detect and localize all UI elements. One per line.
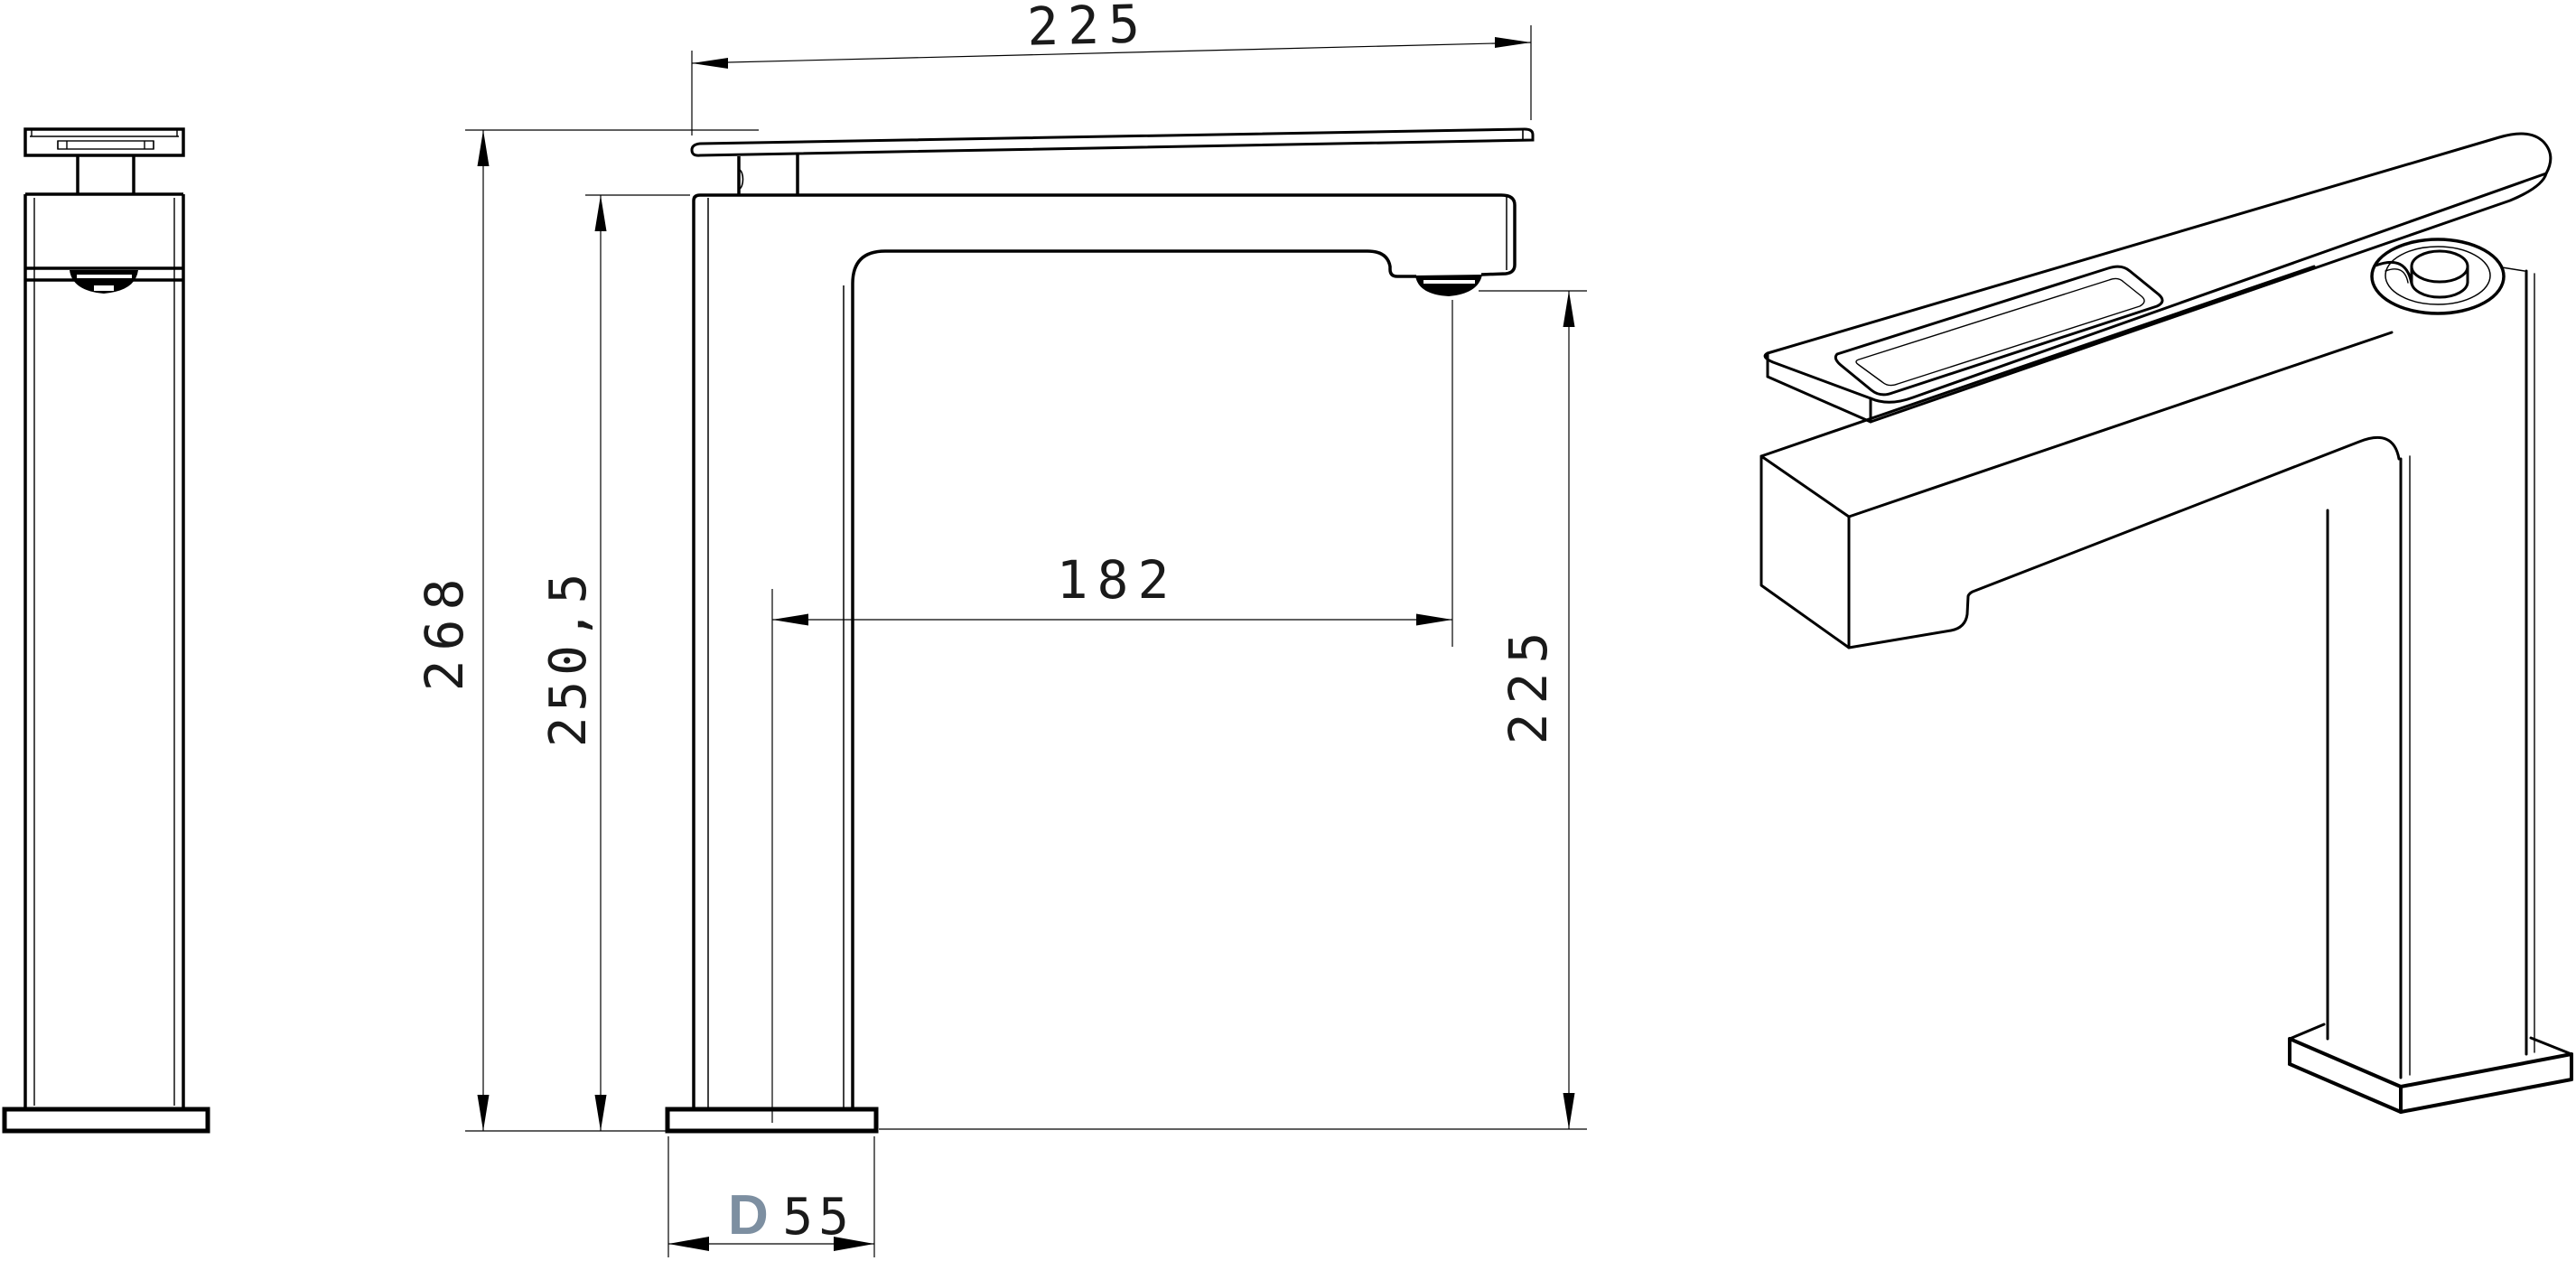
side-view (5, 129, 208, 1131)
iso-view (1761, 134, 2571, 1112)
dim-handle-length: 225 (692, 0, 1531, 135)
arrow-left-icon (692, 58, 728, 69)
front-handle-lever (692, 129, 1533, 155)
drawing-sheet: 225 268 250,5 182 (0, 0, 2576, 1261)
front-body-outline (694, 195, 1515, 1109)
side-base-plate (5, 1109, 208, 1131)
arrow-right-icon (1416, 614, 1452, 626)
iso-column (2328, 267, 2534, 1078)
arrow-down-icon (595, 1095, 607, 1131)
faucet-technical-drawing: 225 268 250,5 182 (0, 0, 2576, 1261)
dim-label-body-height: 250,5 (539, 568, 598, 748)
dimensions: 225 268 250,5 182 (414, 0, 1587, 1257)
dim-body-height: 250,5 (539, 195, 690, 1131)
arrow-up-icon (1563, 291, 1575, 327)
dim-label-handle-length: 225 (1026, 0, 1149, 58)
arrow-down-icon (1563, 1093, 1575, 1129)
iso-base (2290, 1024, 2571, 1112)
dim-base-diameter: D 55 (668, 1136, 874, 1257)
front-cartridge-stem (739, 154, 798, 195)
arrow-right-icon (1495, 37, 1531, 48)
dim-label-spout-reach: 182 (1057, 549, 1179, 611)
front-view (667, 129, 1533, 1131)
dim-spout-height: 225 (1479, 291, 1587, 1129)
front-aerator (1415, 275, 1482, 296)
dim-spout-reach: 182 (772, 300, 1452, 1123)
arrow-left-icon (668, 1237, 709, 1251)
side-handle-plate (25, 129, 183, 155)
iso-handle (1765, 134, 2551, 422)
arrow-up-icon (478, 130, 490, 166)
dim-label-spout-height: 225 (1498, 623, 1559, 745)
side-body (25, 194, 183, 1109)
diameter-value: 55 (782, 1188, 854, 1247)
side-cartridge-stem (78, 155, 134, 194)
arrow-up-icon (595, 195, 607, 231)
arrow-down-icon (478, 1095, 490, 1131)
arrow-left-icon (772, 614, 808, 626)
iso-cartridge-cap (2372, 239, 2504, 313)
diameter-prefix: D (728, 1184, 769, 1247)
front-spout-underside (853, 251, 1416, 1109)
dim-label-total-height: 268 (414, 570, 475, 692)
iso-spout-arm (1761, 262, 2412, 648)
dim-label-base-diameter: D 55 (728, 1184, 854, 1247)
